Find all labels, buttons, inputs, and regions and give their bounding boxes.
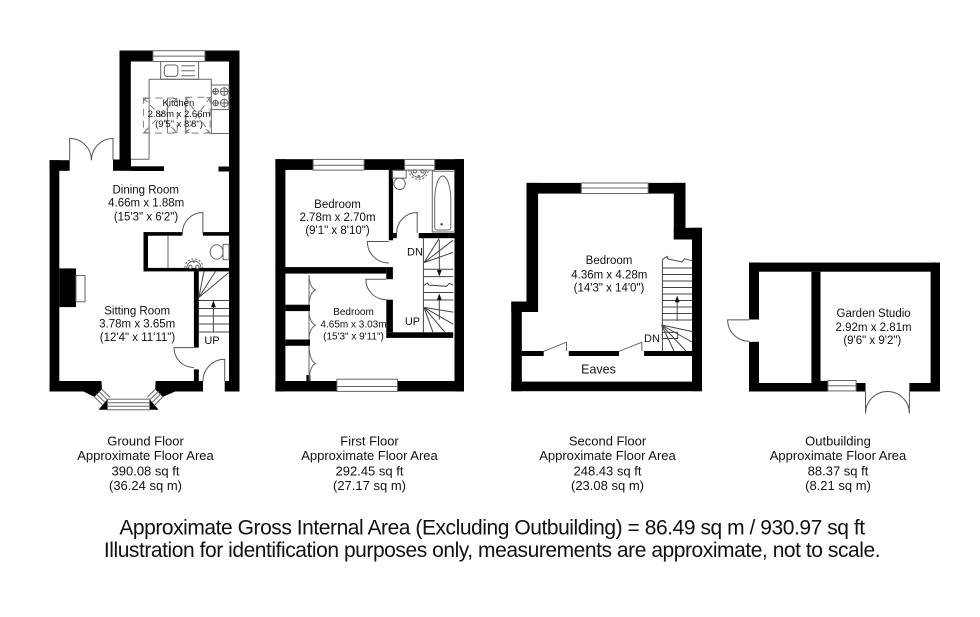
svg-text:4.36m x 4.28m: 4.36m x 4.28m xyxy=(571,270,647,282)
svg-text:248.43 sq ft: 248.43 sq ft xyxy=(574,464,642,479)
svg-text:(15'3" x 6'2"): (15'3" x 6'2") xyxy=(114,212,179,224)
svg-text:Garden Studio: Garden Studio xyxy=(837,308,911,320)
svg-text:UP: UP xyxy=(405,316,420,328)
svg-text:Bedroom: Bedroom xyxy=(333,307,374,318)
svg-text:(8.21 sq m): (8.21 sq m) xyxy=(805,478,871,493)
svg-text:390.08 sq ft: 390.08 sq ft xyxy=(112,464,180,479)
svg-text:(9'1" x 8'10"): (9'1" x 8'10") xyxy=(305,225,370,237)
svg-text:First Floor: First Floor xyxy=(340,434,399,449)
svg-text:(27.17 sq m): (27.17 sq m) xyxy=(333,478,406,493)
svg-text:Ground Floor: Ground Floor xyxy=(107,434,184,449)
svg-text:Approximate Gross Internal Are: Approximate Gross Internal Area (Excludi… xyxy=(119,517,865,540)
svg-text:(36.24 sq m): (36.24 sq m) xyxy=(109,478,182,493)
svg-text:Approximate Floor Area: Approximate Floor Area xyxy=(301,448,438,463)
svg-text:Eaves: Eaves xyxy=(581,363,616,377)
svg-text:3.78m x 3.65m: 3.78m x 3.65m xyxy=(99,319,175,331)
svg-text:2.92m x 2.81m: 2.92m x 2.81m xyxy=(836,322,912,334)
svg-text:Dining Room: Dining Room xyxy=(112,184,178,196)
svg-text:(15'3" x 9'11"): (15'3" x 9'11") xyxy=(323,332,384,343)
svg-text:292.45 sq ft: 292.45 sq ft xyxy=(336,464,404,479)
svg-text:Illustration for identificatio: Illustration for identification purposes… xyxy=(104,539,880,562)
svg-text:4.66m x 1.88m: 4.66m x 1.88m xyxy=(108,198,184,210)
svg-text:2.78m x 2.70m: 2.78m x 2.70m xyxy=(299,212,375,224)
svg-text:Second Floor: Second Floor xyxy=(569,434,647,449)
svg-text:(12'4" x 11'11"): (12'4" x 11'11") xyxy=(100,332,176,344)
svg-text:Outbuilding: Outbuilding xyxy=(805,434,871,449)
svg-text:88.37 sq ft: 88.37 sq ft xyxy=(808,464,869,479)
svg-text:UP: UP xyxy=(204,335,219,347)
svg-text:Kitchen: Kitchen xyxy=(163,98,195,109)
svg-text:Approximate Floor Area: Approximate Floor Area xyxy=(770,448,907,463)
svg-text:Bedroom: Bedroom xyxy=(314,199,361,211)
svg-text:DN: DN xyxy=(407,246,423,258)
svg-text:(9'5" x 8'8"): (9'5" x 8'8") xyxy=(155,119,203,130)
svg-text:(14'3" x 14'0"): (14'3" x 14'0") xyxy=(574,283,645,295)
svg-text:Sitting Room: Sitting Room xyxy=(104,305,170,317)
svg-text:DN: DN xyxy=(644,333,660,345)
svg-text:(23.08 sq m): (23.08 sq m) xyxy=(571,478,644,493)
svg-text:Approximate Floor Area: Approximate Floor Area xyxy=(539,448,676,463)
svg-text:4.65m x 3.03m: 4.65m x 3.03m xyxy=(320,320,386,331)
svg-text:Approximate Floor Area: Approximate Floor Area xyxy=(77,448,214,463)
svg-text:(9'6" x 9'2"): (9'6" x 9'2") xyxy=(843,335,901,347)
svg-text:Bedroom: Bedroom xyxy=(586,255,633,267)
